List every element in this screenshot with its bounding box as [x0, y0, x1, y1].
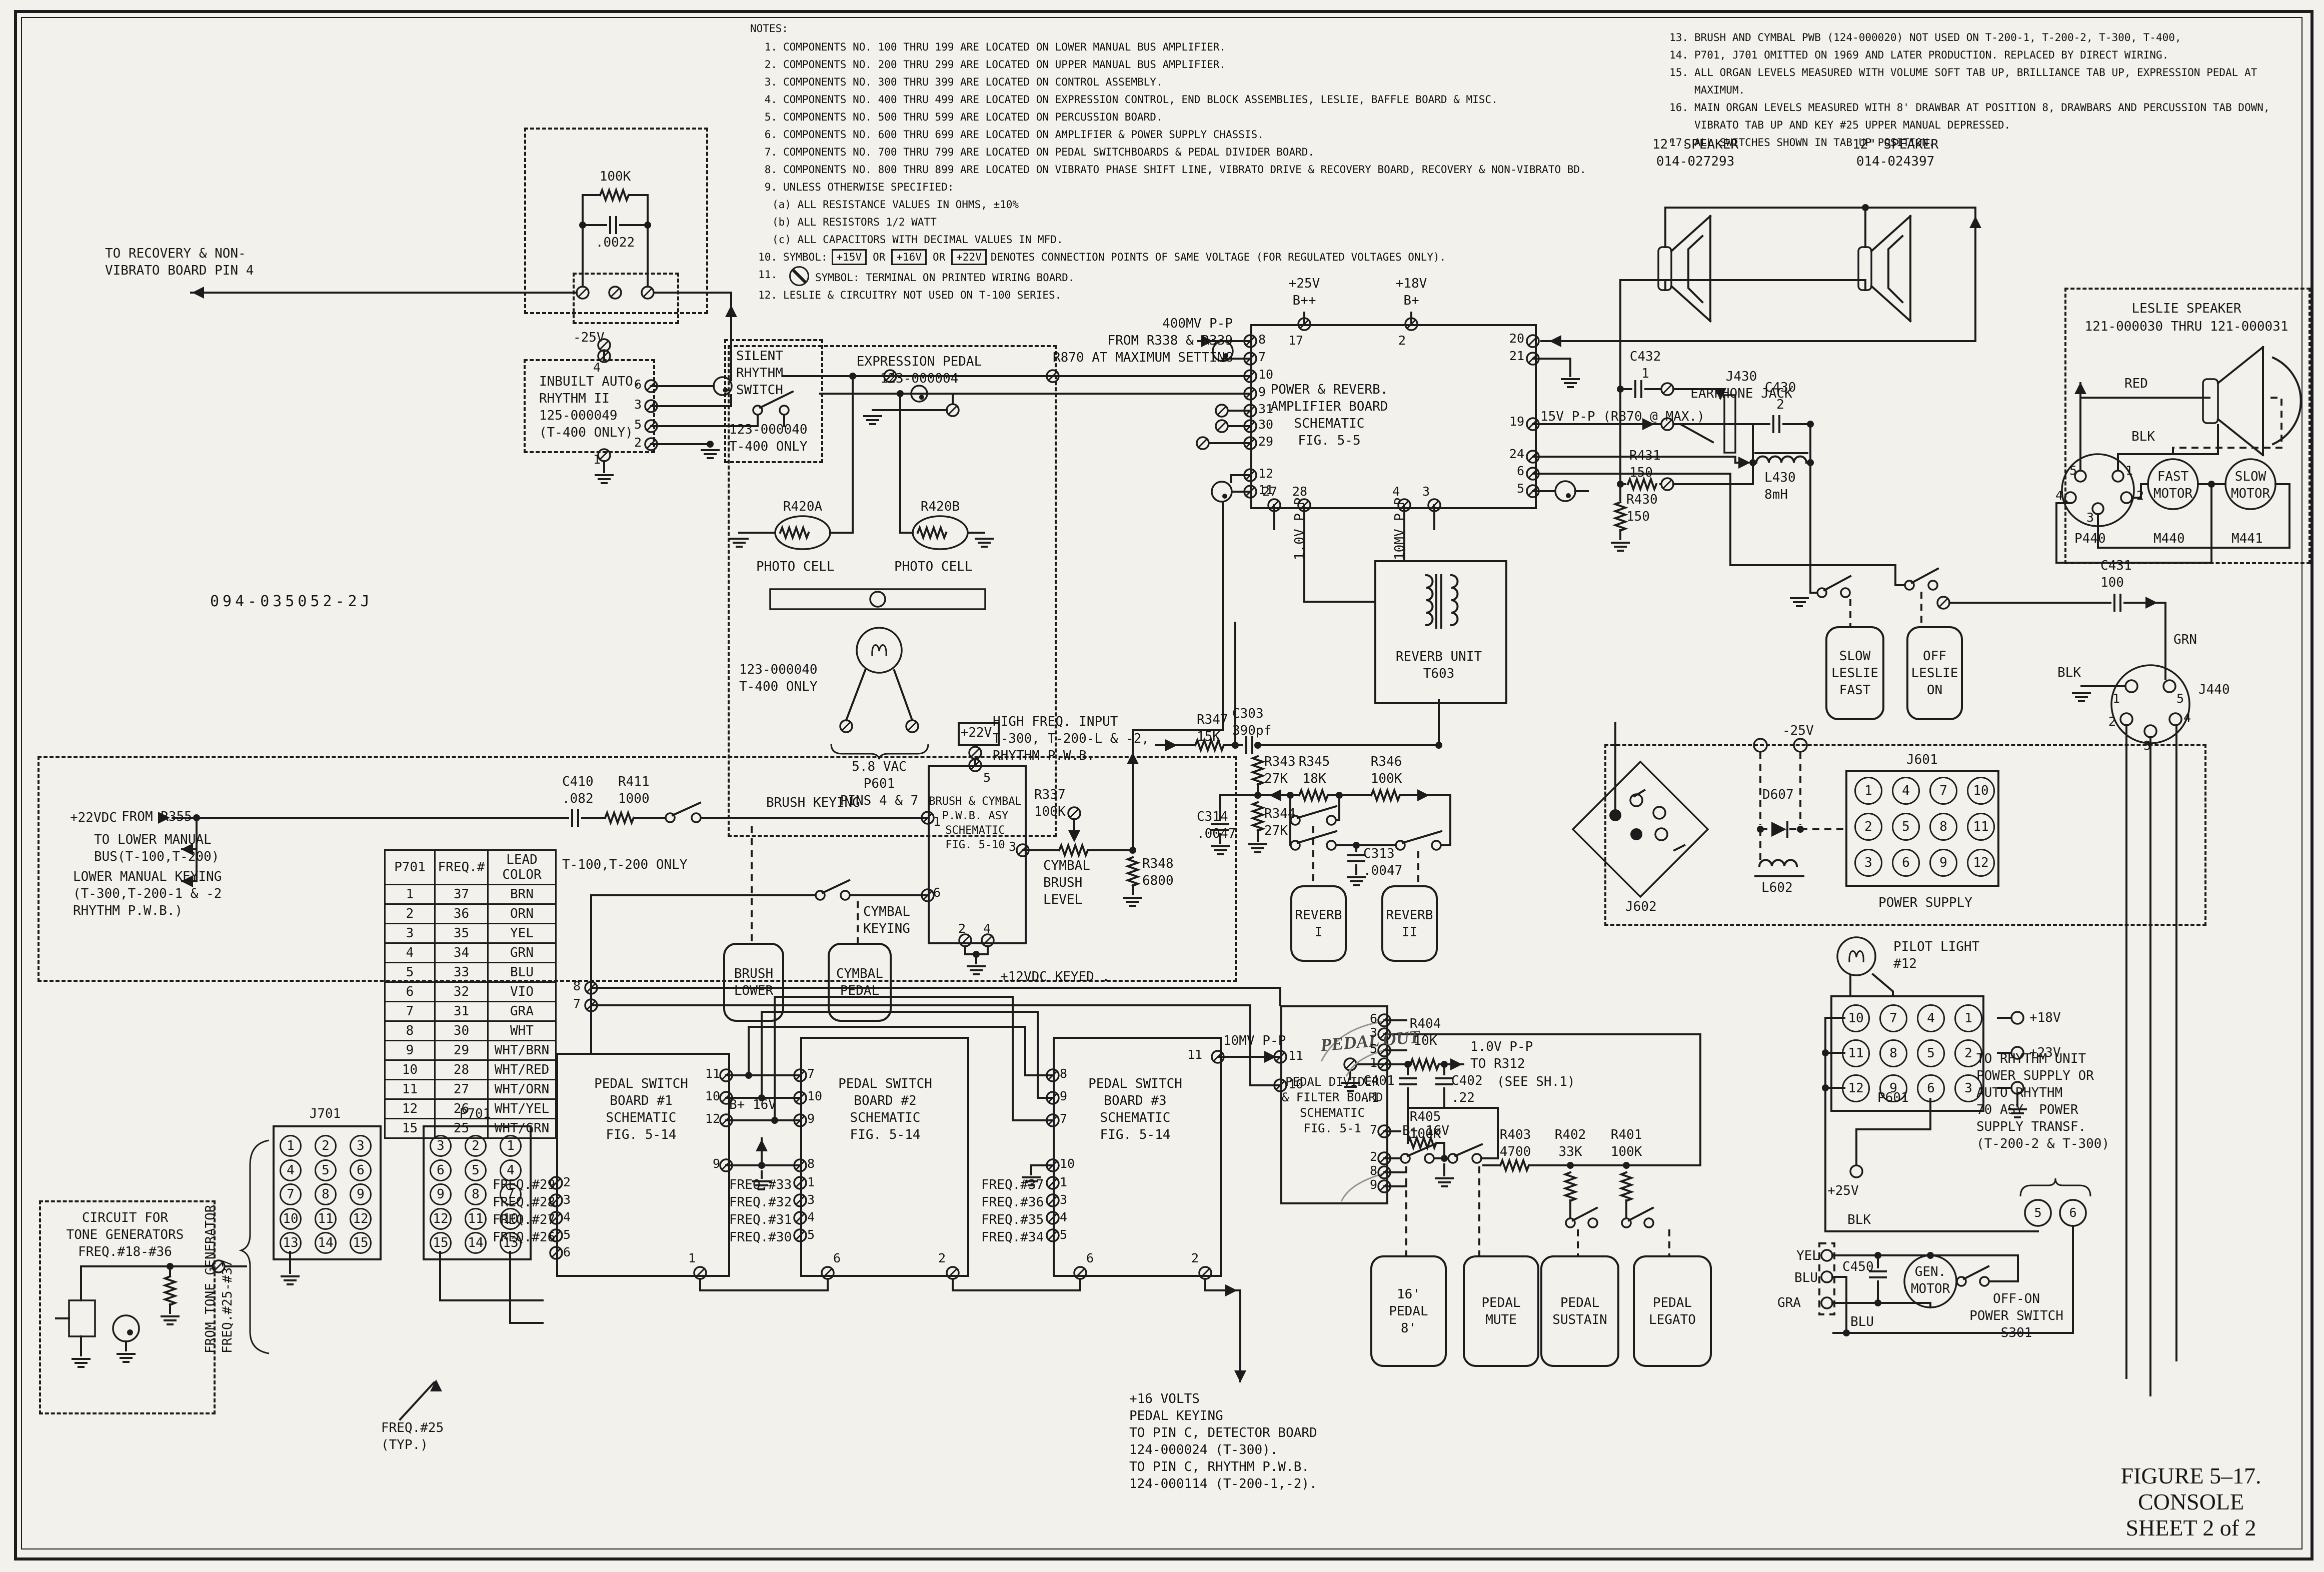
freq-lead-color-table: P701FREQ.#LEAD COLOR137BRN236ORN335YEL43… — [384, 849, 557, 1139]
pin-label: 17 — [1288, 334, 1303, 347]
note-item: 7.COMPONENTS NO. 700 THRU 799 ARE LOCATE… — [750, 144, 1610, 161]
label-l602: L602 — [1761, 879, 1793, 896]
label-f28: FREQ.#28 — [493, 1194, 555, 1211]
label-r411: R411 1000 — [618, 773, 650, 807]
table-cell: 7 — [385, 1002, 435, 1021]
pin-label: 6 — [1370, 1012, 1377, 1025]
label-f31: FREQ.#31 — [729, 1211, 792, 1228]
note-content: COMPONENTS NO. 200 THRU 299 ARE LOCATED … — [783, 56, 1226, 74]
note-text: LESLIE & CIRCUITRY NOT USED ON T-100 SER… — [783, 289, 1061, 301]
j701-pin: 2 — [315, 1135, 337, 1157]
pin-label: 6 — [933, 886, 941, 899]
pin-label: 1 — [1060, 1176, 1067, 1189]
note-number: 4. — [750, 91, 783, 109]
j601-pin: 6 — [1892, 849, 1920, 877]
note-text: OR — [933, 251, 945, 263]
label-j701: J701 — [310, 1105, 341, 1122]
j601-pin: 11 — [1967, 813, 1995, 841]
pin-label: 10 — [705, 1090, 720, 1103]
box-brush-cymbal-pwb — [928, 765, 1027, 944]
pin-label: 5 — [1517, 482, 1524, 495]
note-text: UNLESS OTHERWISE SPECIFIED: — [783, 181, 954, 193]
p701-pin: 5 — [465, 1159, 487, 1181]
label-sh1: (SEE SH.1) — [1497, 1073, 1575, 1090]
pin-label: 7 — [1258, 351, 1266, 364]
label-tolm: TO LOWER MANUAL BUS(T-100,T-200) — [94, 831, 219, 865]
j701-pin: 15 — [350, 1232, 372, 1254]
title-block-name: CONSOLE — [2075, 1489, 2306, 1515]
label-j602: J602 — [1625, 898, 1657, 915]
label-blk_c: BLK — [1847, 1211, 1871, 1228]
label-f33: FREQ.#33 — [729, 1176, 792, 1193]
note-number: 3. — [750, 74, 783, 91]
label-r345: R345 18K — [1299, 753, 1330, 787]
label-v1r312: 1.0V P-P TO R312 — [1470, 1038, 1533, 1072]
label-r402: R402 33K — [1555, 1126, 1586, 1160]
p701-pin: 15 — [430, 1232, 452, 1254]
pin-label: 2 — [563, 1176, 571, 1189]
note-item: 16.MAIN ORGAN LEVELS MEASURED WITH 8' DR… — [1661, 99, 2311, 134]
label-offon: OFF-ON POWER SWITCH S301 — [1969, 1290, 2063, 1341]
note-number: 10. — [750, 249, 783, 266]
label-psb2: PEDAL SWITCH BOARD #2 SCHEMATIC FIG. 5-1… — [838, 1075, 932, 1143]
label-exppn: 123-000040 T-400 ONLY — [739, 661, 818, 695]
note-item: 11.SYMBOL: TERMINAL ON PRINTED WIRING BO… — [750, 266, 1610, 287]
box-reverb-unit — [1374, 560, 1507, 704]
label-t100: T-100,T-200 ONLY — [562, 856, 687, 873]
label-blu_b: BLU — [1850, 1313, 1874, 1330]
pin-label: 2 — [938, 1252, 946, 1265]
pin-label: 1 — [807, 1176, 815, 1189]
table-cell: 35 — [435, 924, 488, 943]
label-r337: R337 100K — [1034, 786, 1066, 820]
label-v16n: +16 VOLTS PEDAL KEYING TO PIN C, DETECTO… — [1129, 1390, 1317, 1492]
note-item: 17.ALL SWITCHES SHOWN IN TAB UP POSITION… — [1661, 134, 2311, 152]
label-r420b: R420B — [921, 498, 960, 515]
note-text: OR — [873, 251, 885, 263]
note-text: P701, J701 OMITTED ON 1969 AND LATER PRO… — [1694, 49, 2168, 61]
title-block: FIGURE 5–17.CONSOLESHEET 2 of 2 — [2075, 1463, 2306, 1541]
table-header: LEAD COLOR — [488, 850, 556, 885]
label-n25a: -25V — [573, 329, 605, 346]
label-genm: GEN. MOTOR — [1911, 1263, 1950, 1297]
label-r344: R344 27K — [1264, 805, 1296, 839]
table-row: 434GRN — [385, 943, 556, 963]
tab-rev2: REVERB II — [1381, 885, 1438, 962]
table-cell: 8 — [385, 1021, 435, 1041]
pin-label: 9 — [713, 1157, 720, 1170]
label-ftg: FROM TONE GENERATOR FREQ.#25-#37 — [202, 1205, 236, 1353]
note-text: COMPONENTS NO. 300 THRU 399 ARE LOCATED … — [783, 76, 1163, 88]
j701-pin: 10 — [280, 1208, 302, 1230]
label-f25t: FREQ.#25 (TYP.) — [381, 1419, 444, 1453]
label-v15: 15V P-P (R870 @ MAX.) — [1540, 408, 1705, 425]
note-text: COMPONENTS NO. 500 THRU 599 ARE LOCATED … — [783, 111, 1163, 123]
label-c450: C450 — [1842, 1258, 1874, 1275]
note-subitem: (c) ALL CAPACITORS WITH DECIMAL VALUES I… — [772, 231, 1610, 249]
label-blk_b: BLK — [2057, 664, 2081, 681]
table-header-row: P701FREQ.#LEAD COLOR — [385, 850, 556, 885]
box-filter-terminals — [573, 273, 679, 324]
tab-rev1: REVERB I — [1290, 885, 1347, 962]
note-content: BRUSH AND CYMBAL PWB (124-000020) NOT US… — [1694, 29, 2181, 47]
pin-label: 20 — [1509, 332, 1524, 345]
p601-pin: 6 — [1917, 1074, 1945, 1102]
pin-label: 4 — [593, 361, 601, 374]
tab-cpedal: CYMBAL PEDAL — [828, 943, 892, 1022]
note-number: 8. — [750, 161, 783, 179]
table-row: 1028WHT/RED — [385, 1060, 556, 1080]
table-header: P701 — [385, 850, 435, 885]
pin-label: 3 — [1009, 840, 1016, 853]
label-lmk: LOWER MANUAL KEYING (T-300,T-200-1 & -2 … — [73, 868, 222, 919]
label-blu_a: BLU — [1794, 1269, 1818, 1286]
label-c410: C410 .082 — [562, 773, 594, 807]
label-fr355: FROM R355 — [122, 808, 192, 825]
note-item: 8.COMPONENTS NO. 800 THRU 899 ARE LOCATE… — [750, 161, 1610, 179]
label-f35: FREQ.#35 — [981, 1211, 1044, 1228]
table-cell: 37 — [435, 885, 488, 904]
pin-label: 12 — [705, 1112, 720, 1125]
pin-label: 5 — [1060, 1228, 1067, 1241]
label-c430: C430 2 — [1765, 379, 1796, 413]
pin-label: 5 — [807, 1228, 815, 1241]
note-content: ALL SWITCHES SHOWN IN TAB UP POSITION. — [1694, 134, 1934, 152]
note-content: COMPONENTS NO. 700 THRU 799 ARE LOCATED … — [783, 144, 1314, 161]
table-cell: WHT/BRN — [488, 1041, 556, 1060]
label-bc: BRUSH & CYMBAL P.W.B. ASY SCHEMATIC FIG.… — [929, 794, 1021, 852]
pin-label: 8 — [573, 980, 581, 993]
pin-label: 5 — [2069, 464, 2077, 477]
label-psb3: PEDAL SWITCH BOARD #3 SCHEMATIC FIG. 5-1… — [1088, 1075, 1182, 1143]
label-p18: +18V — [2029, 1009, 2061, 1026]
note-content: LESLIE & CIRCUITRY NOT USED ON T-100 SER… — [783, 287, 1061, 304]
pin-label: 7 — [1060, 1112, 1067, 1125]
pin-label: 3 — [563, 1193, 571, 1206]
table-cell: 12 — [385, 1099, 435, 1119]
pin-label: 2 — [2136, 489, 2144, 502]
pin-label: 8 — [1370, 1164, 1377, 1177]
schematic-sheet: BRUSH LOWERCYMBAL PEDALREVERB IREVERB II… — [0, 0, 2324, 1572]
pin-label: 8 — [807, 1157, 815, 1170]
label-pilot: PILOT LIGHT #12 — [1893, 938, 1979, 972]
box-pedal-switch-2 — [800, 1037, 969, 1277]
j701-pin: 1 — [280, 1135, 302, 1157]
note-text: SYMBOL: — [783, 251, 828, 263]
p701-pin: 9 — [430, 1183, 452, 1205]
note-content: COMPONENTS NO. 800 THRU 899 ARE LOCATED … — [783, 161, 1586, 179]
note-number: 5. — [750, 109, 783, 126]
label-pc2: PHOTO CELL — [894, 558, 973, 575]
j601-pin: 10 — [1967, 777, 1995, 805]
pin-label: 2 — [1191, 1252, 1199, 1265]
table-row: 533BLU — [385, 963, 556, 982]
pin-label: 5 — [634, 418, 642, 431]
note-number: 11. — [750, 266, 783, 287]
note-text: COMPONENTS NO. 200 THRU 299 ARE LOCATED … — [783, 59, 1226, 71]
label-v10a: 1.0V P-P — [1291, 498, 1308, 560]
j601-pin: 8 — [1929, 813, 1957, 841]
note-content: COMPONENTS NO. 400 THRU 499 ARE LOCATED … — [783, 91, 1498, 109]
label-r430: R430 150 — [1626, 491, 1658, 525]
pin-label: 6 — [1086, 1252, 1094, 1265]
table-cell: WHT/RED — [488, 1060, 556, 1080]
pin-label: 2 — [958, 922, 966, 935]
label-f36: FREQ.#36 — [981, 1194, 1044, 1211]
note-content: MAIN ORGAN LEVELS MEASURED WITH 8' DRAWB… — [1694, 99, 2270, 134]
label-c0022: .0022 — [596, 234, 635, 251]
label-pc1: PHOTO CELL — [756, 558, 835, 575]
label-torec: TO RECOVERY & NON- VIBRATO BOARD PIN 4 — [105, 245, 254, 279]
label-c303: C303 390pf — [1232, 705, 1271, 739]
label-j601: J601 — [1906, 751, 1938, 768]
pin-label: 2 — [634, 436, 642, 449]
note-item: 4.COMPONENTS NO. 400 THRU 499 ARE LOCATE… — [750, 91, 1610, 109]
table-cell: 27 — [435, 1080, 488, 1099]
table-cell: GRA — [488, 1002, 556, 1021]
table-cell: WHT/YEL — [488, 1099, 556, 1119]
j701-pin: 4 — [280, 1159, 302, 1181]
pin-label: 4 — [983, 922, 991, 935]
label-d607: D607 — [1762, 786, 1794, 803]
table-cell: 29 — [435, 1041, 488, 1060]
p701-pin: 6 — [430, 1159, 452, 1181]
note-text: COMPONENTS NO. 800 THRU 899 ARE LOCATED … — [783, 164, 1586, 176]
label-f29: FREQ.#29 — [493, 1176, 555, 1193]
j701-pin: 14 — [315, 1232, 337, 1254]
note-number: 17. — [1661, 134, 1694, 152]
note-item: 5.COMPONENTS NO. 500 THRU 599 ARE LOCATE… — [750, 109, 1610, 126]
note-number: 7. — [750, 144, 783, 161]
note-number: 9. — [750, 179, 783, 196]
notes-right: 13.BRUSH AND CYMBAL PWB (124-000020) NOT… — [1661, 29, 2311, 152]
label-p22vdc: +22VDC — [70, 809, 117, 826]
note-content: COMPONENTS NO. 600 THRU 699 ARE LOCATED … — [783, 126, 1264, 144]
pin-label: 2 — [2108, 715, 2116, 728]
pin-label: 3 — [1060, 1193, 1067, 1206]
table-cell: 5 — [385, 963, 435, 982]
note-content: SYMBOL:+15VOR+16VOR+22VDENOTES CONNECTIO… — [783, 249, 1446, 266]
label-r100k: 100K — [600, 168, 631, 185]
note-item: 10.SYMBOL:+15VOR+16VOR+22VDENOTES CONNEC… — [750, 249, 1610, 266]
title-block-figure: FIGURE 5–17. — [2075, 1463, 2306, 1489]
label-silent: SILENT RHYTHM SWITCH — [736, 348, 783, 399]
note-number: 12. — [750, 287, 783, 304]
pin-label: 1 — [933, 815, 941, 828]
table-cell: 10 — [385, 1060, 435, 1080]
voltage-symbol-box: +15V — [832, 249, 867, 265]
label-r405: R405 100K — [1410, 1108, 1441, 1142]
table-cell: 36 — [435, 904, 488, 924]
tab-pleg: PEDAL LEGATO — [1633, 1255, 1712, 1367]
label-p601: P601 — [1877, 1089, 1909, 1106]
table-cell: BLU — [488, 963, 556, 982]
table-row: 632VIO — [385, 982, 556, 1002]
note-item: 15.ALL ORGAN LEVELS MEASURED WITH VOLUME… — [1661, 64, 2311, 99]
voltage-symbol-box: +16V — [891, 249, 927, 265]
note-number: 13. — [1661, 29, 1694, 47]
note-number: 16. — [1661, 99, 1694, 134]
p601-pin: 11 — [1842, 1039, 1870, 1067]
table-cell: 11 — [385, 1080, 435, 1099]
note-text: COMPONENTS NO. 100 THRU 199 ARE LOCATED … — [783, 41, 1226, 53]
note-item: 13.BRUSH AND CYMBAL PWB (124-000020) NOT… — [1661, 29, 2311, 47]
j701-pin: 11 — [315, 1208, 337, 1230]
j701-pin: 3 — [350, 1135, 372, 1157]
table-cell: 2 — [385, 904, 435, 924]
table-cell: BRN — [488, 885, 556, 904]
pin-label: 31 — [1258, 403, 1273, 416]
note-text: ALL ORGAN LEVELS MEASURED WITH VOLUME SO… — [1694, 67, 2257, 96]
pin-label: 8 — [1060, 1067, 1067, 1080]
tab-pmute: PEDAL MUTE — [1463, 1255, 1539, 1367]
p601-pin: 12 — [1842, 1074, 1870, 1102]
table-cell: 31 — [435, 1002, 488, 1021]
label-f32: FREQ.#32 — [729, 1194, 792, 1211]
label-p440: P440 — [2074, 530, 2106, 547]
table-cell: 1 — [385, 885, 435, 904]
note-number: 14. — [1661, 47, 1694, 64]
label-f37: FREQ.#37 — [981, 1176, 1044, 1193]
pin-label: 8 — [1258, 333, 1266, 346]
label-c402: C402 .22 — [1451, 1072, 1483, 1106]
pin-label: 4 — [1392, 485, 1400, 498]
note-subitem: (a) ALL RESISTANCE VALUES IN OHMS, ±10% — [772, 196, 1610, 214]
pin-label: 6 — [2069, 1206, 2076, 1219]
label-r343: R343 27K — [1264, 753, 1296, 787]
pin-label: 6 — [1517, 465, 1524, 478]
pin-label: 4 — [2055, 489, 2063, 502]
pin-label: 3 — [634, 398, 642, 411]
pin-label: 28 — [1292, 485, 1307, 498]
pin-label: 4 — [563, 1211, 571, 1224]
label-mv10: 10MV P-P — [1223, 1032, 1286, 1049]
pin-label: 3 — [2143, 739, 2151, 752]
table-cell: VIO — [488, 982, 556, 1002]
table-cell: WHT/ORN — [488, 1080, 556, 1099]
pin-label: 7 — [573, 997, 581, 1010]
pin-label: 4 — [1060, 1211, 1067, 1224]
j701-pin: 9 — [350, 1183, 372, 1205]
pin-label: 3 — [2086, 511, 2094, 524]
label-r401: R401 100K — [1611, 1126, 1642, 1160]
table-cell: YEL — [488, 924, 556, 943]
pin-label: 27 — [1262, 485, 1277, 498]
label-slowm: SLOW MOTOR — [2231, 468, 2270, 502]
label-f34: FREQ.#34 — [981, 1229, 1044, 1246]
pin-label: 1 — [2125, 464, 2133, 477]
table-row: 1127WHT/ORN — [385, 1080, 556, 1099]
label-j440: J440 — [2198, 681, 2230, 698]
pin-label: 4 — [807, 1211, 815, 1224]
j601-pin: 12 — [1967, 849, 1995, 877]
note-item: 3.COMPONENTS NO. 300 THRU 399 ARE LOCATE… — [750, 74, 1610, 91]
j601-pin: 3 — [1854, 849, 1882, 877]
table-cell: GRN — [488, 943, 556, 963]
pin-label: 5 — [563, 1228, 571, 1241]
table-row: 137BRN — [385, 885, 556, 904]
label-silentpn: 123-000040 T-400 ONLY — [729, 421, 808, 455]
pin-label: 1 — [1370, 1056, 1377, 1069]
pin-label: 5 — [983, 771, 991, 784]
table-cell: 28 — [435, 1060, 488, 1080]
table-cell: ORN — [488, 904, 556, 924]
note-item: 2.COMPONENTS NO. 200 THRU 299 ARE LOCATE… — [750, 56, 1610, 74]
label-dwg: 094-035052-2J — [210, 593, 373, 610]
j601-pin: 5 — [1892, 813, 1920, 841]
label-pamp: POWER & REVERB. AMPLIFIER BOARD SCHEMATI… — [1271, 381, 1388, 449]
label-blk_a: BLK — [2131, 428, 2155, 445]
table-cell: 6 — [385, 982, 435, 1002]
table-cell: WHT/GRN — [488, 1119, 556, 1138]
label-psb1: PEDAL SWITCH BOARD #1 SCHEMATIC FIG. 5-1… — [594, 1075, 688, 1143]
j601-pin: 2 — [1854, 813, 1882, 841]
p601-pin: 1 — [1954, 1004, 1982, 1032]
pin-label: 4 — [2183, 711, 2191, 724]
label-yel: YEL — [1796, 1247, 1820, 1264]
table-cell: 34 — [435, 943, 488, 963]
note-subitem: (b) ALL RESISTORS 1/2 WATT — [772, 214, 1610, 231]
j701-pin: 12 — [350, 1208, 372, 1230]
label-hfi: HIGH FREQ. INPUT T-300, T-200-L & -2, RH… — [993, 713, 1149, 764]
pin-label: 11 — [705, 1067, 720, 1080]
table-cell: 4 — [385, 943, 435, 963]
note-content: COMPONENTS NO. 300 THRU 399 ARE LOCATED … — [783, 74, 1163, 91]
label-inbuilt: INBUILT AUTO. RHYTHM II 125-000049 (T-40… — [539, 373, 641, 441]
note-content: P701, J701 OMITTED ON 1969 AND LATER PRO… — [1694, 47, 2168, 64]
table-header: FREQ.# — [435, 850, 488, 885]
label-b16a: B+ 16V — [729, 1096, 776, 1113]
pin-label: 5 — [1370, 1042, 1377, 1055]
tab-blower: BRUSH LOWER — [723, 943, 784, 1022]
pin-label: 12 — [1258, 467, 1273, 480]
note-content: UNLESS OTHERWISE SPECIFIED: — [783, 179, 954, 196]
voltage-symbol-box: +22V — [951, 249, 987, 265]
note-number: 1. — [750, 39, 783, 56]
label-c401: C401 .1 — [1363, 1072, 1395, 1106]
label-c432: C432 1 — [1630, 348, 1661, 382]
label-gra: GRA — [1777, 1294, 1801, 1311]
pin-label: 6 — [833, 1252, 841, 1265]
p601-pin: 10 — [1842, 1004, 1870, 1032]
note-text: ALL SWITCHES SHOWN IN TAB UP POSITION. — [1694, 137, 1934, 149]
note-text: COMPONENTS NO. 400 THRU 499 ARE LOCATED … — [783, 94, 1498, 106]
p701-pin: 8 — [465, 1183, 487, 1205]
pin-label: 7 — [1370, 1123, 1377, 1136]
note-item: 14.P701, J701 OMITTED ON 1969 AND LATER … — [1661, 47, 2311, 64]
pin-label: 3 — [1370, 1026, 1377, 1039]
table-row: 830WHT — [385, 1021, 556, 1041]
j701-pin: 5 — [315, 1159, 337, 1181]
p701-pin: 12 — [430, 1208, 452, 1230]
tab-slowl: SLOW LESLIE FAST — [1825, 626, 1884, 720]
pin-label: 9 — [1370, 1178, 1377, 1191]
table-row: 236ORN — [385, 904, 556, 924]
note-item: 6.COMPONENTS NO. 600 THRU 699 ARE LOCATE… — [750, 126, 1610, 144]
note-content: COMPONENTS NO. 500 THRU 599 ARE LOCATED … — [783, 109, 1163, 126]
j601-pin: 9 — [1929, 849, 1957, 877]
table-cell: 15 — [385, 1119, 435, 1138]
label-f27: FREQ.#27 — [493, 1211, 555, 1228]
note-text: COMPONENTS NO. 700 THRU 799 ARE LOCATED … — [783, 146, 1314, 158]
label-r347: R347 15K — [1197, 711, 1228, 745]
label-torhy: TO RHYTHM UNIT POWER SUPPLY OR AUTO RHYT… — [1976, 1050, 2109, 1152]
pin-label: 3 — [807, 1193, 815, 1206]
label-fastm: FAST MOTOR — [2153, 468, 2192, 502]
table-cell: 9 — [385, 1041, 435, 1060]
j601-pin: 1 — [1854, 777, 1882, 805]
pin-label: 9 — [1060, 1090, 1067, 1103]
